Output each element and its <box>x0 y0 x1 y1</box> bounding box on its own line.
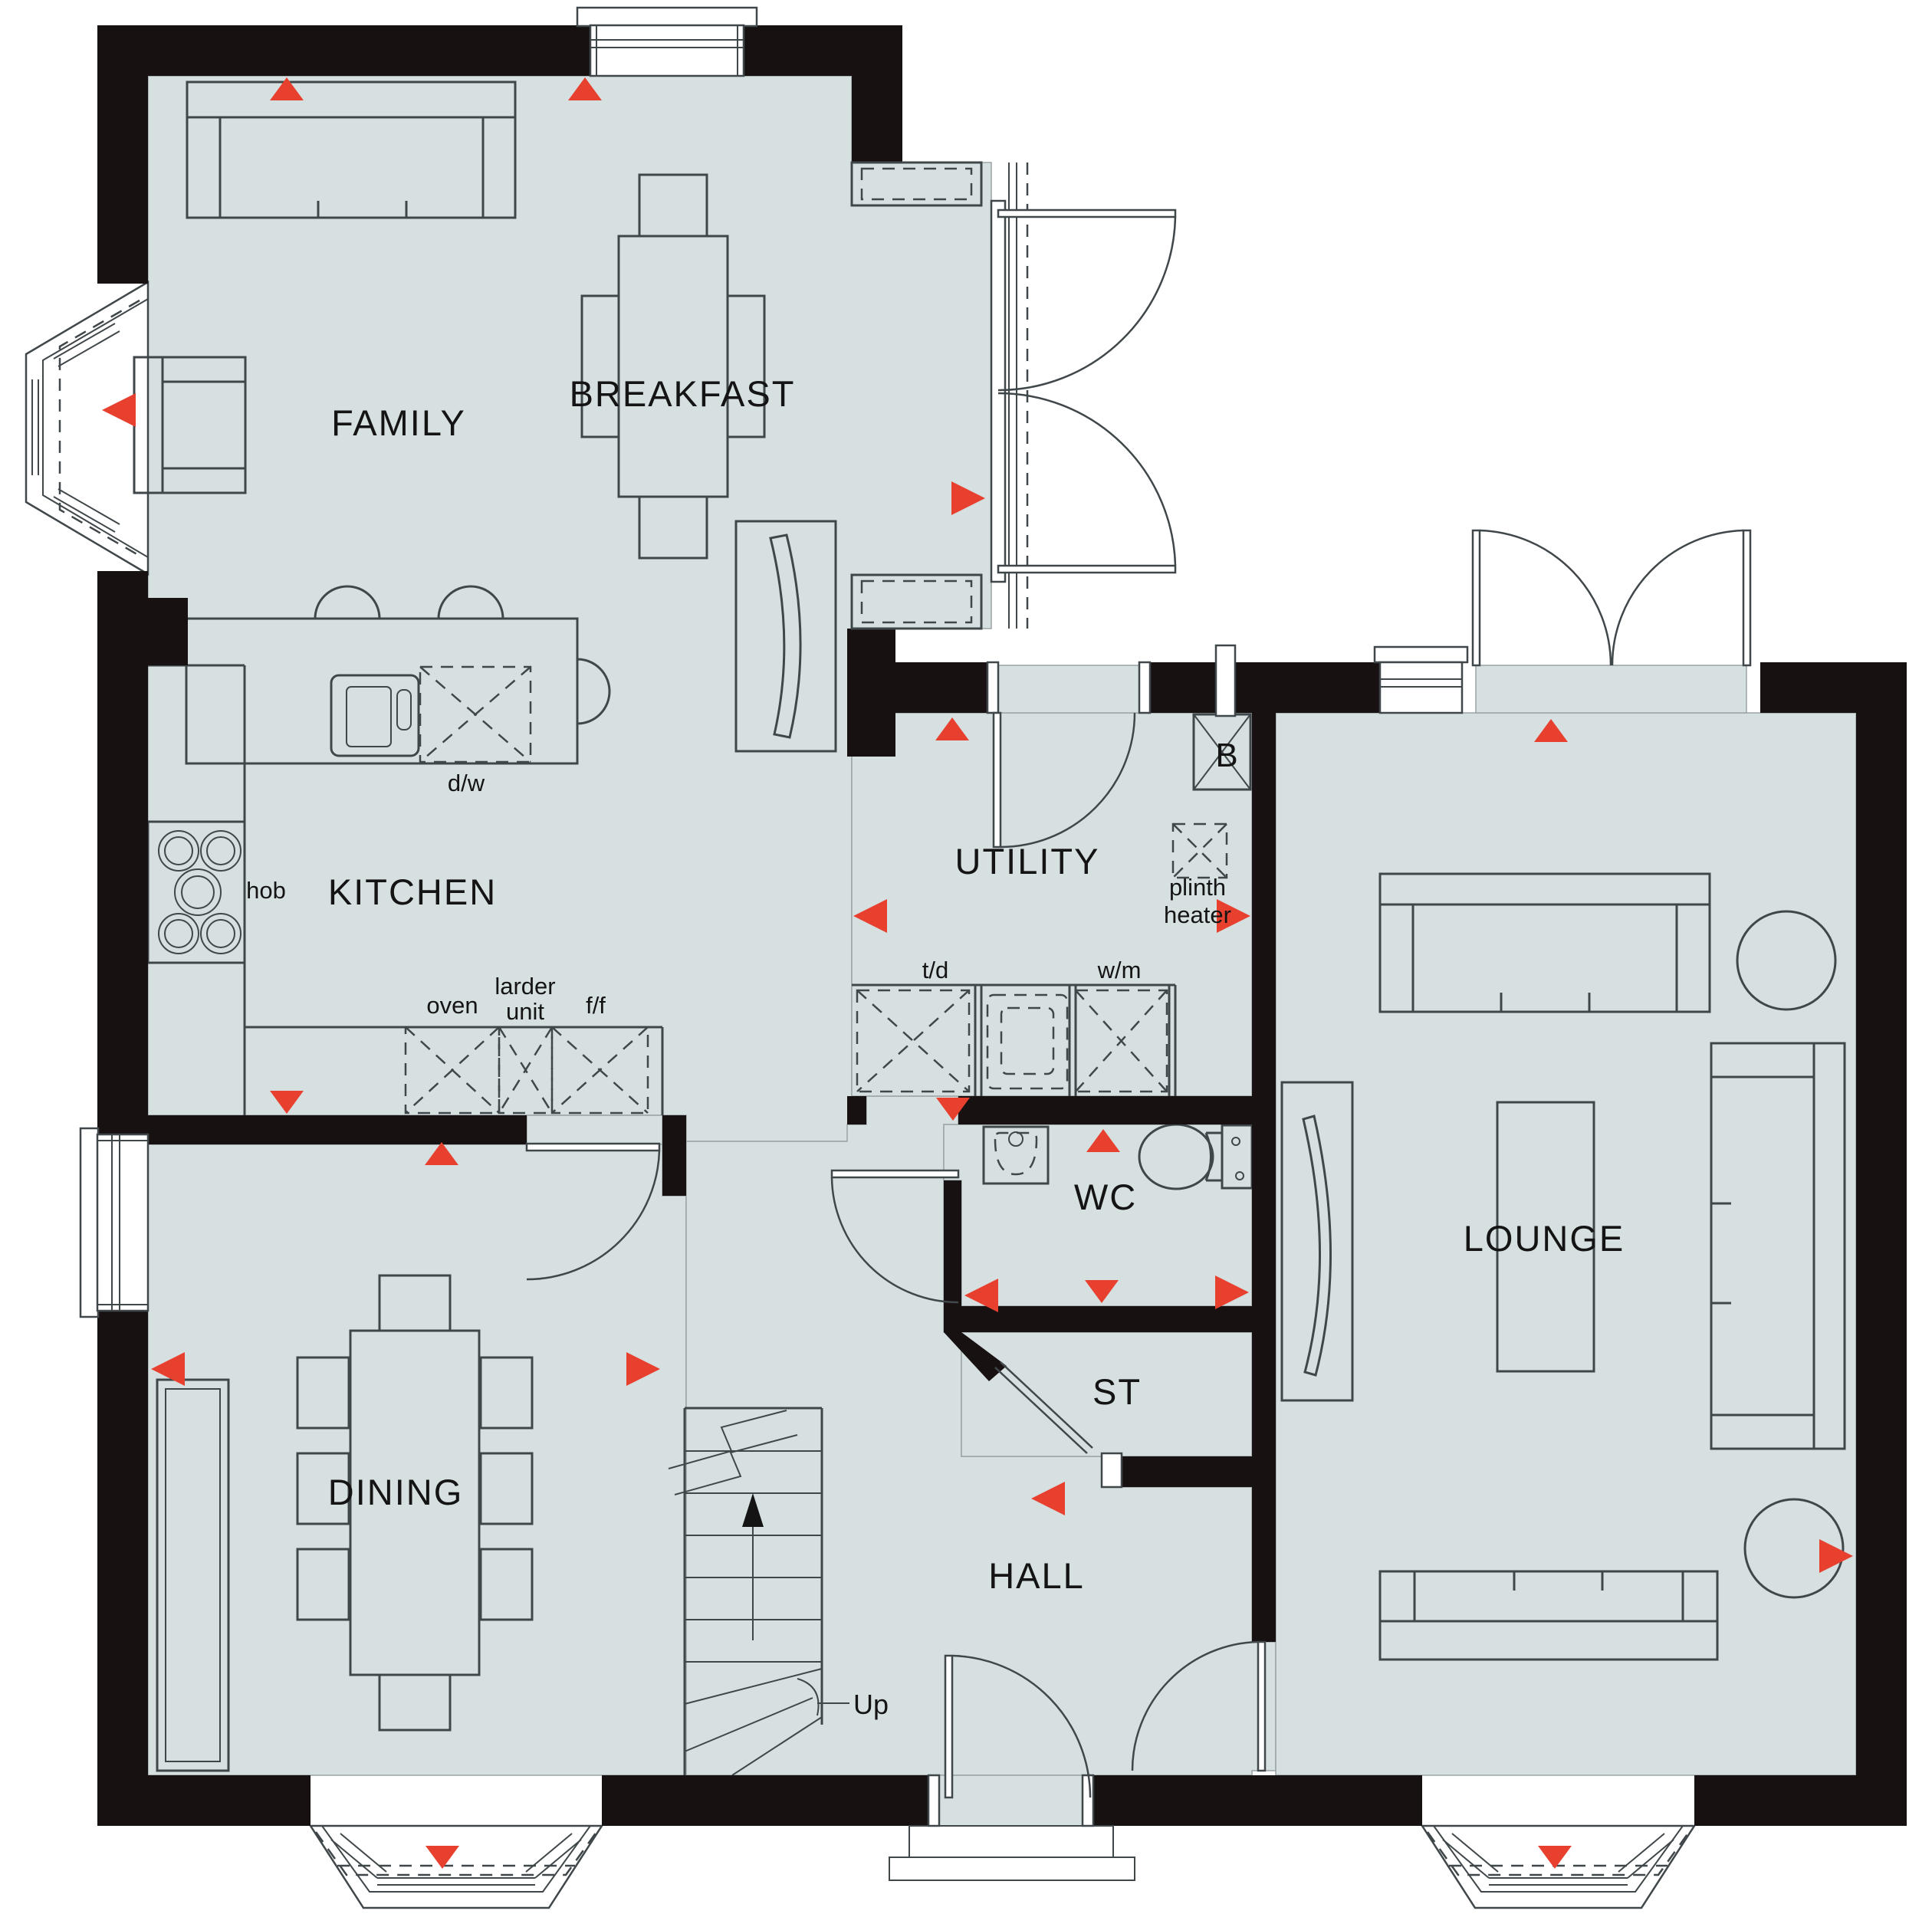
label-store: ST <box>1092 1371 1142 1412</box>
label-family: FAMILY <box>331 402 466 443</box>
label-wc: WC <box>1074 1177 1137 1217</box>
label-larder-1: larder <box>495 973 555 1000</box>
breakfast-window-seat-bottom <box>852 575 981 629</box>
label-hall: HALL <box>988 1555 1085 1596</box>
label-oven: oven <box>426 992 478 1019</box>
floor-utility-door-recess <box>998 665 1139 713</box>
floor-front-door-recess <box>939 1775 1083 1826</box>
label-utility: UTILITY <box>955 841 1100 881</box>
floor-lounge-doors-recess <box>1476 665 1746 713</box>
boiler-flue <box>1216 645 1235 716</box>
floor-plan-svg: FAMILY BREAKFAST KITCHEN DINING LOUNGE U… <box>0 0 1932 1914</box>
label-dishwasher: d/w <box>448 770 485 796</box>
label-tumble-dryer: t/d <box>922 957 948 983</box>
front-door-steps <box>889 1826 1135 1880</box>
breakfast-french-doors <box>998 210 1175 573</box>
utility-door-jamb <box>987 662 998 713</box>
front-door-jamb <box>928 1775 939 1826</box>
label-plinth-2: heater <box>1164 901 1231 928</box>
utility-door-jamb <box>1139 662 1150 713</box>
lounge-window <box>1375 647 1467 713</box>
label-lounge: LOUNGE <box>1464 1218 1625 1259</box>
room-floors <box>107 76 1856 1866</box>
floor-plan-page: FAMILY BREAKFAST KITCHEN DINING LOUNGE U… <box>0 0 1932 1914</box>
label-larder-2: unit <box>506 998 544 1025</box>
family-bay-window <box>26 282 148 574</box>
store-door-jamb <box>1102 1453 1122 1487</box>
label-fridge-freezer: f/f <box>586 992 606 1019</box>
label-breakfast: BREAKFAST <box>570 373 796 414</box>
label-hob: hob <box>246 877 286 904</box>
lounge-french-doors <box>1473 530 1750 665</box>
front-door-jamb <box>1083 1775 1093 1826</box>
label-plinth-1: plinth <box>1169 874 1226 901</box>
breakfast-window <box>577 8 757 76</box>
dining-window <box>80 1128 148 1317</box>
label-washing-machine: w/m <box>1097 957 1142 983</box>
label-up: Up <box>853 1689 889 1720</box>
label-boiler: B <box>1215 737 1237 774</box>
floor-kitchen-doorway <box>527 1115 662 1144</box>
label-dining: DINING <box>328 1472 464 1512</box>
dining-bay-window <box>310 1826 602 1908</box>
label-kitchen: KITCHEN <box>328 872 497 912</box>
